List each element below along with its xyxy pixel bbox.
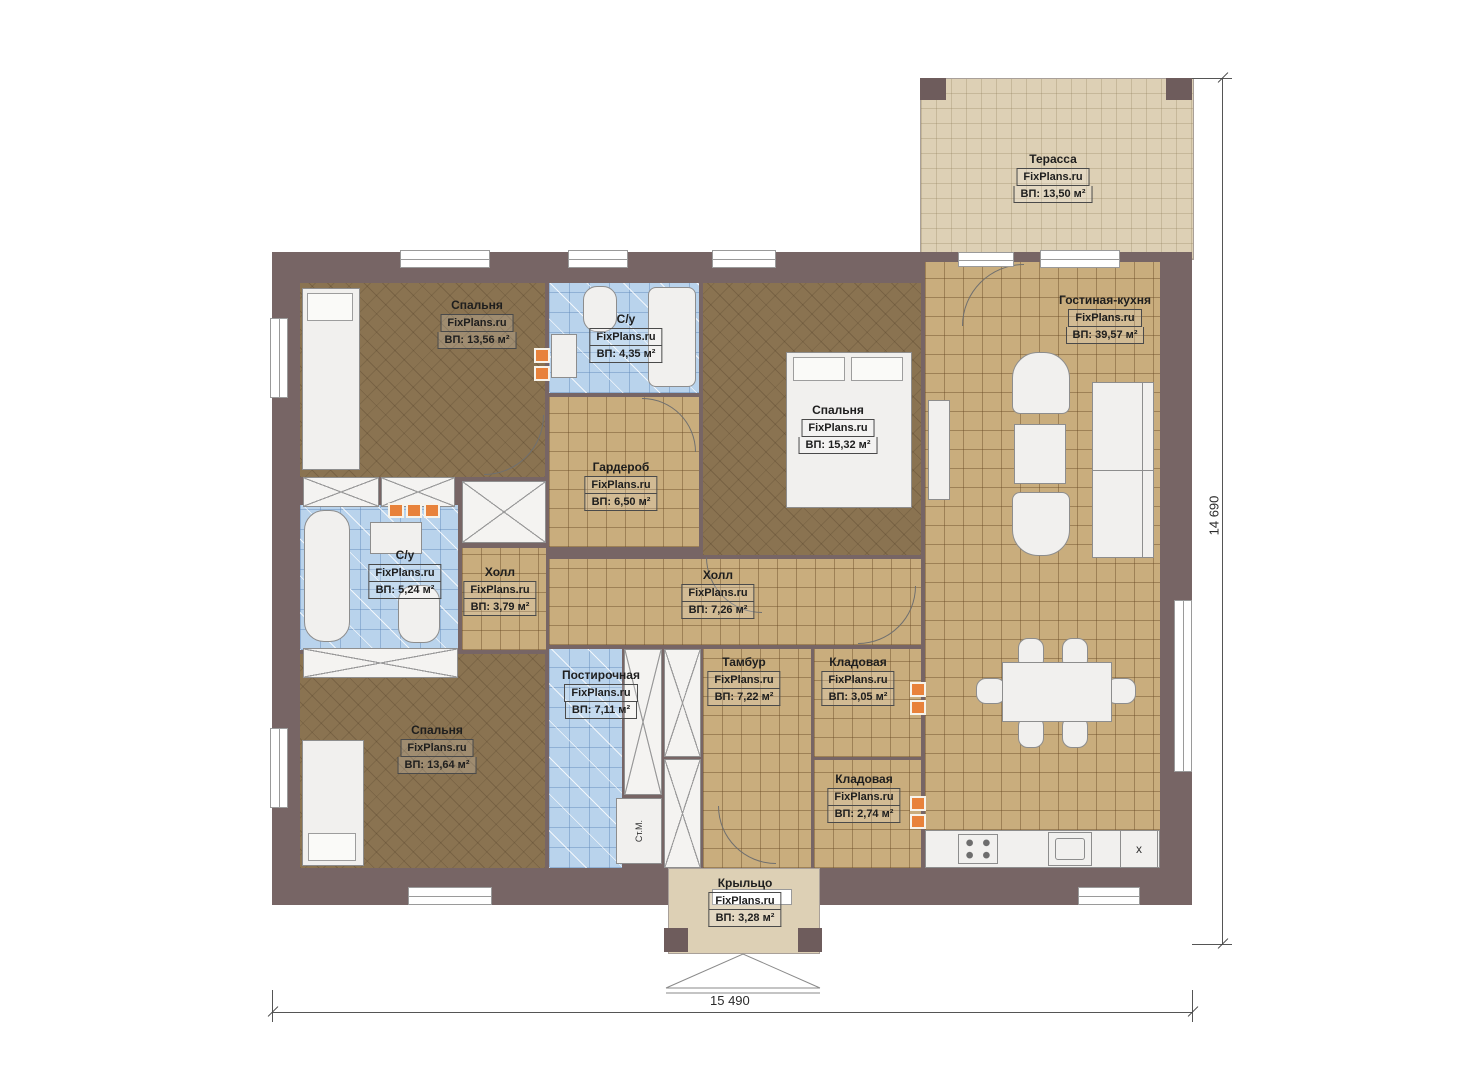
room-label-storage-2: Кладовая FixPlans.ru ВП: 2,74 м² [827, 772, 900, 823]
room-area: ВП: 4,35 м² [590, 346, 663, 363]
room-name: С/у [617, 312, 636, 326]
watermark: FixPlans.ru [589, 328, 662, 346]
closet [664, 759, 701, 868]
room-area: ВП: 13,56 м² [438, 332, 517, 349]
room-label-bedroom-2: Спальня FixPlans.ru ВП: 15,32 м² [799, 403, 878, 454]
room-name: Гардероб [593, 460, 650, 474]
watermark: FixPlans.ru [707, 671, 780, 689]
watermark: FixPlans.ru [681, 584, 754, 602]
window [408, 887, 492, 905]
terrace-door-opening [958, 252, 1014, 267]
room-label-bathroom-1: С/у FixPlans.ru ВП: 4,35 м² [589, 312, 662, 363]
vent-marker [534, 366, 550, 381]
room-name: Тамбур [722, 655, 766, 669]
dimension-height-label: 14 690 [1206, 496, 1221, 536]
room-area: ВП: 39,57 м² [1066, 327, 1145, 344]
room-area: ВП: 7,11 м² [565, 702, 637, 719]
room-label-storage-1: Кладовая FixPlans.ru ВП: 3,05 м² [821, 655, 894, 706]
room-name: Гостиная-кухня [1059, 293, 1151, 307]
watermark: FixPlans.ru [708, 892, 781, 910]
room-name: Кладовая [829, 655, 886, 669]
room-area: ВП: 7,22 м² [708, 689, 781, 706]
window [712, 250, 776, 268]
washing-machine: Ст.М. [616, 798, 662, 864]
watermark: FixPlans.ru [1016, 168, 1089, 186]
room-name: Терасса [1029, 152, 1077, 166]
vent-marker [424, 503, 440, 518]
room-area: ВП: 13,50 м² [1014, 186, 1093, 203]
window [400, 250, 490, 268]
room-name: Спальня [812, 403, 864, 417]
window [568, 250, 628, 268]
room-area: ВП: 3,28 м² [709, 910, 782, 927]
window [1040, 250, 1120, 268]
terrace-pillar [1166, 78, 1192, 100]
room-area: ВП: 3,79 м² [464, 599, 537, 616]
closet [462, 481, 546, 543]
watermark: FixPlans.ru [801, 419, 874, 437]
washing-machine-label: Ст.М. [634, 820, 644, 842]
room-label-vestibule: Тамбур FixPlans.ru ВП: 7,22 м² [707, 655, 780, 706]
watermark: FixPlans.ru [821, 671, 894, 689]
armchair [1012, 352, 1070, 414]
room-label-hall-main: Холл FixPlans.ru ВП: 7,26 м² [681, 568, 754, 619]
bed [302, 288, 360, 470]
room-name: Постирочная [562, 668, 640, 682]
sofa [1092, 382, 1154, 558]
room-label-bedroom-3: Спальня FixPlans.ru ВП: 13,64 м² [398, 723, 477, 774]
vent-marker [910, 796, 926, 811]
fridge: x [1120, 830, 1158, 868]
tv-stand [928, 400, 950, 500]
dimension-line-bottom [272, 1012, 1192, 1013]
watermark: FixPlans.ru [440, 314, 513, 332]
watermark: FixPlans.ru [400, 739, 473, 757]
vent-marker [910, 700, 926, 715]
vent-marker [406, 503, 422, 518]
coffee-table [1014, 424, 1066, 484]
room-name: Холл [485, 565, 515, 579]
window [270, 728, 288, 808]
watermark: FixPlans.ru [564, 684, 637, 702]
bed [302, 740, 364, 866]
floor-plan: Ст.М. x Терасса FixPlans.ru ВП: 13,50 м²… [0, 0, 1474, 1080]
vent-marker [388, 503, 404, 518]
room-label-laundry: Постирочная FixPlans.ru ВП: 7,11 м² [562, 668, 640, 719]
porch-steps [658, 948, 828, 996]
terrace-pillar [920, 78, 946, 100]
dimension-extension [272, 990, 273, 1022]
room-name: Спальня [411, 723, 463, 737]
dimension-line-right [1222, 78, 1223, 945]
watermark: FixPlans.ru [1068, 309, 1141, 327]
closet [303, 477, 379, 507]
fridge-label: x [1136, 842, 1142, 856]
room-area: ВП: 6,50 м² [585, 494, 658, 511]
room-label-bathroom-2: С/у FixPlans.ru ВП: 5,24 м² [368, 548, 441, 599]
dimension-extension [1192, 944, 1232, 945]
room-area: ВП: 2,74 м² [828, 806, 901, 823]
vent-marker [910, 682, 926, 697]
window [1078, 887, 1140, 905]
room-label-bedroom-1: Спальня FixPlans.ru ВП: 13,56 м² [438, 298, 517, 349]
room-name: Крыльцо [718, 876, 773, 890]
sink [551, 334, 577, 378]
dining-table [1002, 662, 1112, 722]
stove [958, 834, 998, 864]
room-label-terrace: Терасса FixPlans.ru ВП: 13,50 м² [1014, 152, 1093, 203]
watermark: FixPlans.ru [463, 581, 536, 599]
room-label-hall-small: Холл FixPlans.ru ВП: 3,79 м² [463, 565, 536, 616]
watermark: FixPlans.ru [368, 564, 441, 582]
kitchen-sink [1048, 832, 1092, 866]
vent-marker [534, 348, 550, 363]
window [1174, 600, 1192, 772]
room-area: ВП: 15,32 м² [799, 437, 878, 454]
watermark: FixPlans.ru [584, 476, 657, 494]
dimension-width-label: 15 490 [710, 993, 750, 1008]
room-name: Спальня [451, 298, 503, 312]
dimension-extension [1192, 78, 1232, 79]
room-area: ВП: 5,24 м² [369, 582, 442, 599]
room-area: ВП: 3,05 м² [822, 689, 895, 706]
armchair [1012, 492, 1070, 556]
room-area: ВП: 7,26 м² [682, 602, 755, 619]
room-area: ВП: 13,64 м² [398, 757, 477, 774]
room-label-living-kitchen: Гостиная-кухня FixPlans.ru ВП: 39,57 м² [1059, 293, 1151, 344]
room-name: Холл [703, 568, 733, 582]
watermark: FixPlans.ru [827, 788, 900, 806]
vent-marker [910, 814, 926, 829]
dimension-extension [1192, 990, 1193, 1022]
window [270, 318, 288, 398]
room-name: С/у [396, 548, 415, 562]
room-label-porch: Крыльцо FixPlans.ru ВП: 3,28 м² [708, 876, 781, 927]
closet [664, 649, 701, 757]
room-name: Кладовая [835, 772, 892, 786]
room-label-wardrobe: Гардероб FixPlans.ru ВП: 6,50 м² [584, 460, 657, 511]
bathtub [304, 510, 350, 642]
closet [303, 648, 458, 678]
